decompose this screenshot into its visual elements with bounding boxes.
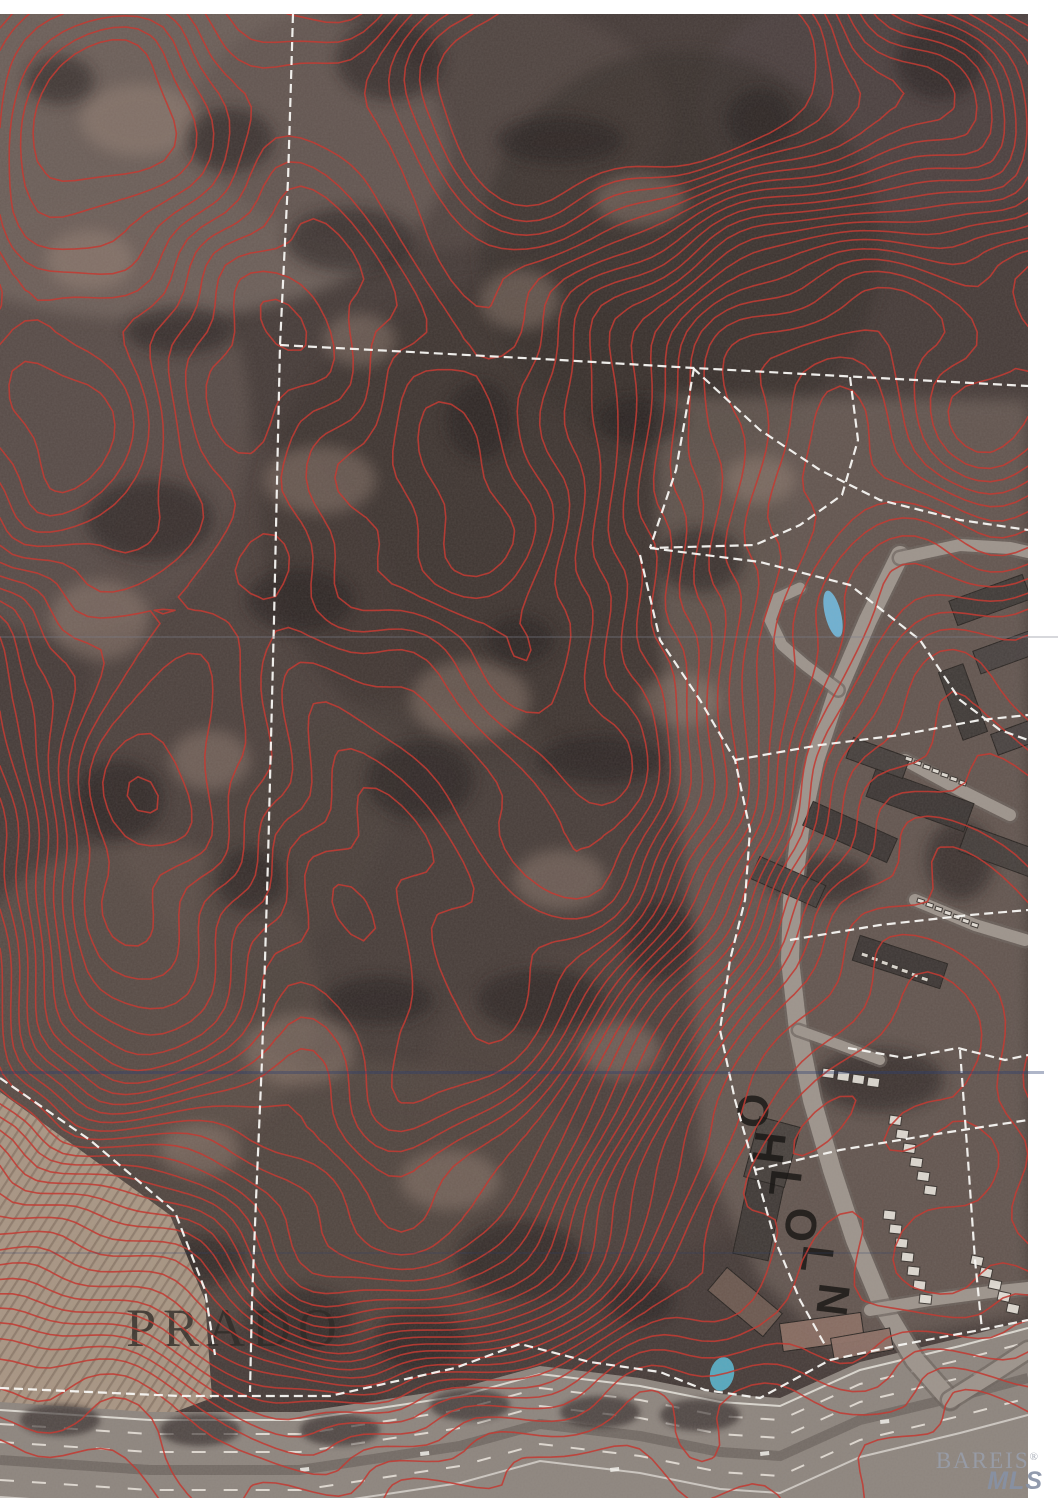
watermark-mls: MLS xyxy=(987,1467,1043,1495)
scan-artifact-line xyxy=(0,1252,900,1254)
street-label-letter: H xyxy=(742,1129,795,1167)
scan-artifact-line xyxy=(0,1071,1044,1074)
scan-margin-top xyxy=(0,0,1058,14)
scanned-mls-map-page: PRADO OHLOLN BAREIS® MLS xyxy=(0,0,1058,1498)
street-label-letter: N xyxy=(806,1281,859,1319)
watermark-registered-mark: ® xyxy=(1030,1451,1040,1463)
scan-artifact-line xyxy=(0,636,1058,638)
street-label-letter: O xyxy=(774,1205,827,1245)
aerial-topo-parcel-map: PRADO OHLOLN BAREIS® MLS xyxy=(0,0,1058,1498)
scan-margin-right xyxy=(1028,0,1058,1498)
street-label-letter: O xyxy=(726,1091,779,1131)
